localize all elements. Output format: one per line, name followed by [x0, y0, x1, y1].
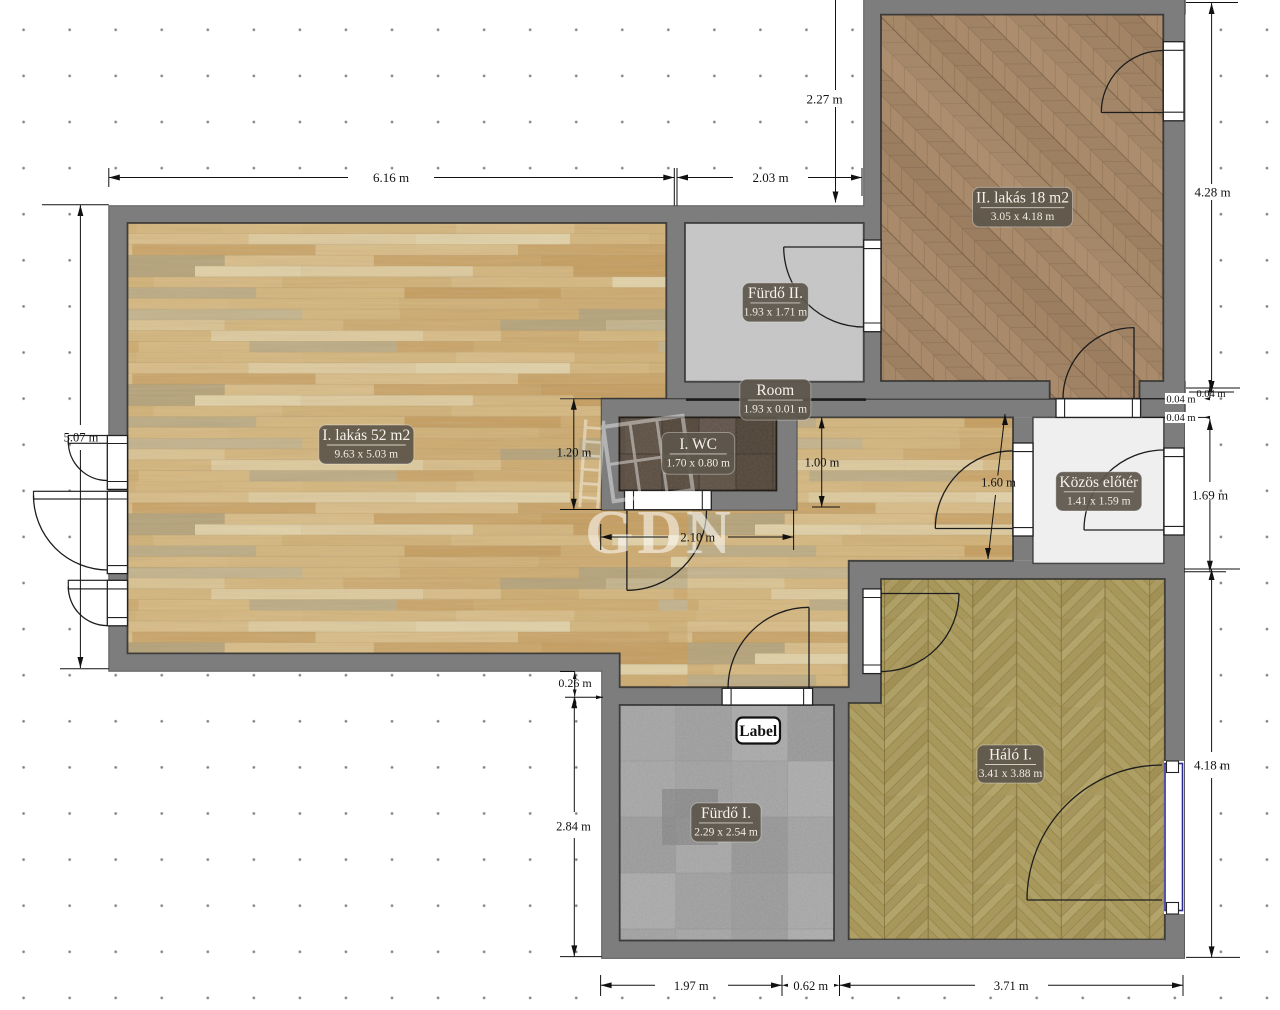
svg-text:Fürdő I.: Fürdő I.: [701, 805, 751, 822]
svg-text:1.93 x 1.71 m: 1.93 x 1.71 m: [744, 306, 808, 318]
svg-text:1.20 m: 1.20 m: [557, 446, 592, 460]
svg-text:Háló I.: Háló I.: [989, 747, 1032, 764]
svg-text:II. lakás 18 m2: II. lakás 18 m2: [976, 190, 1069, 207]
svg-text:2.10 m: 2.10 m: [680, 531, 715, 545]
svg-text:1.93 x 0.01 m: 1.93 x 0.01 m: [744, 404, 808, 416]
svg-text:1.41 x 1.59 m: 1.41 x 1.59 m: [1067, 495, 1131, 507]
svg-text:0.26 m: 0.26 m: [558, 676, 592, 690]
svg-text:3.41 x 3.88 m: 3.41 x 3.88 m: [979, 768, 1043, 780]
svg-text:0.04 m: 0.04 m: [1196, 389, 1225, 400]
svg-text:Label: Label: [739, 723, 778, 740]
svg-text:5.07 m: 5.07 m: [64, 431, 99, 445]
svg-text:4.18 m: 4.18 m: [1194, 758, 1230, 773]
svg-text:0.04 m: 0.04 m: [1166, 413, 1195, 424]
svg-text:I. lakás 52 m2: I. lakás 52 m2: [322, 427, 410, 444]
svg-text:2.03 m: 2.03 m: [752, 170, 788, 185]
svg-text:1.70 x 0.80 m: 1.70 x 0.80 m: [666, 457, 730, 469]
svg-text:1.97 m: 1.97 m: [674, 979, 709, 993]
svg-text:2.84 m: 2.84 m: [556, 820, 591, 834]
svg-text:3.05 x 4.18 m: 3.05 x 4.18 m: [991, 211, 1055, 223]
svg-text:4.28 m: 4.28 m: [1194, 185, 1230, 200]
svg-text:Room: Room: [756, 382, 794, 399]
svg-text:9.63 x 5.03 m: 9.63 x 5.03 m: [335, 449, 399, 461]
svg-text:3.71 m: 3.71 m: [994, 979, 1029, 993]
svg-text:2.27 m: 2.27 m: [806, 92, 842, 107]
svg-text:0.04 m: 0.04 m: [1166, 395, 1195, 406]
svg-text:Fürdő II.: Fürdő II.: [748, 285, 803, 302]
svg-text:2.29 x 2.54 m: 2.29 x 2.54 m: [694, 826, 758, 838]
svg-text:I. WC: I. WC: [679, 436, 717, 453]
svg-text:0.62 m: 0.62 m: [793, 979, 828, 993]
svg-text:1.00 m: 1.00 m: [805, 456, 840, 470]
svg-text:6.16 m: 6.16 m: [373, 170, 409, 185]
svg-text:1.69 m: 1.69 m: [1192, 488, 1228, 503]
svg-text:1.60 m: 1.60 m: [981, 476, 1016, 490]
svg-text:Közös előtér: Közös előtér: [1059, 474, 1139, 491]
